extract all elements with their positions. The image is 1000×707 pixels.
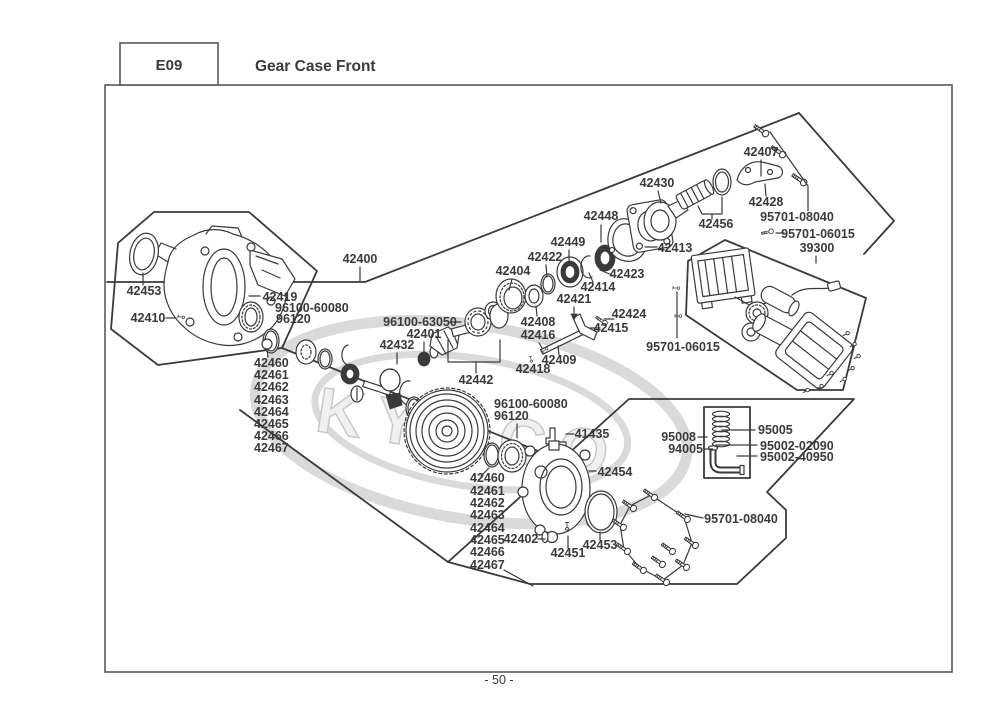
part-label-42410: 42410 xyxy=(131,311,166,325)
part-label-42460: 42460 xyxy=(470,471,505,485)
part-label-42430: 42430 xyxy=(640,176,675,190)
part-label-42456: 42456 xyxy=(699,217,734,231)
part-label-96120: 96120 xyxy=(494,409,529,423)
part-label-39300: 39300 xyxy=(800,241,835,255)
bolt-95701-06015-drawing xyxy=(761,228,774,235)
actuator-assembly-drawing xyxy=(673,248,861,394)
bearing-96120-lower-drawing xyxy=(498,440,526,472)
section-code: E09 xyxy=(156,57,183,74)
part-label-42454: 42454 xyxy=(598,465,633,479)
oil-seal-42453-drawing xyxy=(126,231,162,278)
part-label-95005: 95005 xyxy=(758,423,793,437)
part-label-95002-40950: 95002-40950 xyxy=(760,450,834,464)
part-label-42428: 42428 xyxy=(749,195,784,209)
part-label-42416: 42416 xyxy=(521,328,556,342)
part-label-95701-06015: 95701-06015 xyxy=(781,227,855,241)
part-label-42467: 42467 xyxy=(254,441,289,455)
part-label-42402: 42402 xyxy=(504,532,539,546)
part-label-42407: 42407 xyxy=(744,145,779,159)
page-title: Gear Case Front xyxy=(255,58,376,75)
part-label-42418: 42418 xyxy=(516,362,551,376)
part-label-41435: 41435 xyxy=(575,427,610,441)
part-label-95701-06015: 95701-06015 xyxy=(646,340,720,354)
part-label-42448: 42448 xyxy=(584,209,619,223)
bolt-95701-06015-lower-drawing xyxy=(673,286,680,289)
manual-page: KYMCO E09 Gear Case Front - 50 - xyxy=(0,0,1000,707)
part-label-42422: 42422 xyxy=(528,250,563,264)
bearing-42408-drawing xyxy=(525,285,543,307)
part-label-42463: 42463 xyxy=(470,508,505,522)
part-label-42453: 42453 xyxy=(583,538,618,552)
part-label-42404: 42404 xyxy=(496,264,531,278)
part-label-42432: 42432 xyxy=(380,338,415,352)
part-label-42423: 42423 xyxy=(610,267,645,281)
part-label-42467: 42467 xyxy=(470,558,505,572)
part-label-95701-08040: 95701-08040 xyxy=(704,512,778,526)
part-label-96120: 96120 xyxy=(276,312,311,326)
part-label-42424: 42424 xyxy=(612,307,647,321)
part-label-95701-08040: 95701-08040 xyxy=(760,210,834,224)
part-label-42421: 42421 xyxy=(557,292,592,306)
part-label-42462: 42462 xyxy=(254,380,289,394)
oring-42460-upper-drawing xyxy=(262,339,272,349)
bolt-95701-06015-lower-drawing xyxy=(675,314,682,317)
part-label-42413: 42413 xyxy=(658,241,693,255)
part-label-42442: 42442 xyxy=(459,373,494,387)
page-number: - 50 - xyxy=(484,673,513,687)
part-label-94005: 94005 xyxy=(668,442,703,456)
part-label-42451: 42451 xyxy=(551,546,586,560)
part-label-42453: 42453 xyxy=(127,284,162,298)
exploded-parts-diagram: KYMCO E09 Gear Case Front - 50 - xyxy=(0,0,1000,707)
part-label-42408: 42408 xyxy=(521,315,556,329)
part-label-42400: 42400 xyxy=(343,252,378,266)
spline-sleeve-42456-drawing xyxy=(675,179,715,210)
bracket-42428-drawing xyxy=(737,162,783,185)
oring-42453-lower-drawing xyxy=(585,491,617,533)
part-label-42466: 42466 xyxy=(470,545,505,559)
part-label-42449: 42449 xyxy=(551,235,586,249)
part-label-42415: 42415 xyxy=(594,321,629,335)
ring-gear-drawing xyxy=(404,388,490,474)
